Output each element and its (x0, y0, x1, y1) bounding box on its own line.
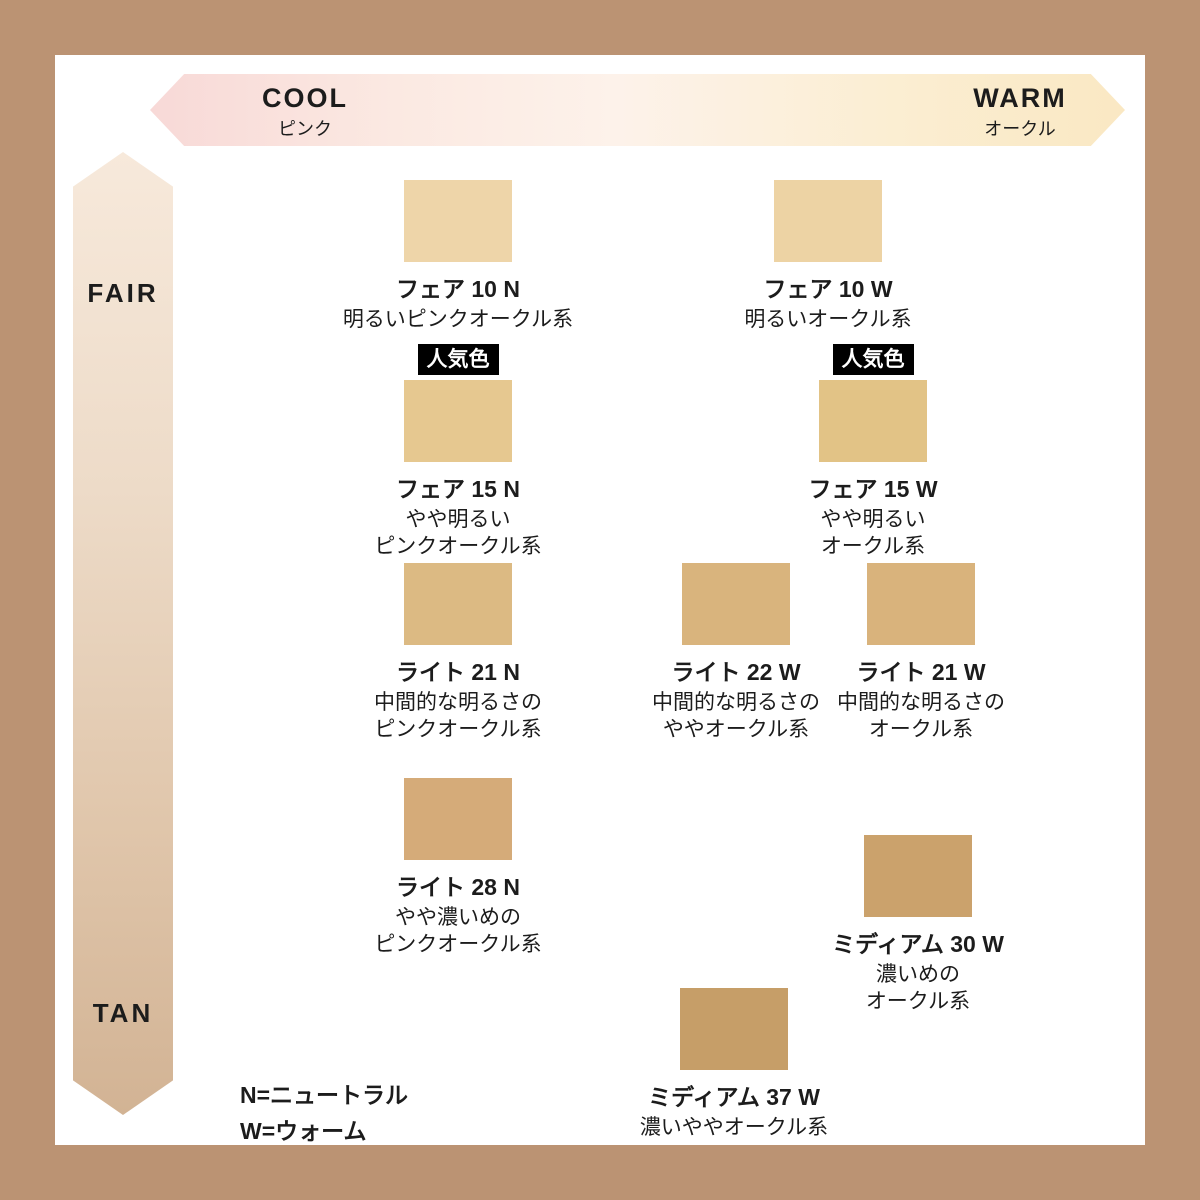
shade-light-21n: ライト 21 N 中間的な明るさの ピンクオークル系 (328, 563, 588, 743)
shade-swatch (404, 778, 512, 860)
legend: N=ニュートラル W=ウォーム (240, 1078, 408, 1149)
shade-name: ライト 22 W (671, 658, 800, 688)
shade-swatch (867, 563, 975, 645)
shade-name: フェア 15 N (396, 475, 520, 505)
shade-swatch (404, 380, 512, 462)
fair-label: FAIR (73, 278, 173, 309)
shade-light-21w: ライト 21 W 中間的な明るさの オークル系 (791, 563, 1051, 743)
shade-fair-10w: フェア 10 W 明るいオークル系 (698, 180, 958, 333)
cool-sublabel: ピンク (278, 115, 332, 141)
shade-desc: 明るいピンクオークル系 (343, 306, 573, 333)
tan-label: TAN (73, 998, 173, 1029)
shade-desc: 濃いややオークル系 (640, 1114, 828, 1141)
shade-desc: やや明るい ピンクオークル系 (374, 506, 541, 561)
shade-chart: COOL ピンク WARM オークル FAIR TAN フェア 10 N 明るい… (0, 0, 1200, 1200)
shade-swatch (680, 988, 788, 1070)
shade-desc: 中間的な明るさの オークル系 (837, 689, 1005, 744)
shade-desc: 明るいオークル系 (744, 306, 911, 333)
shade-desc: 濃いめの オークル系 (866, 961, 970, 1016)
shade-desc: 中間的な明るさの ピンクオークル系 (374, 689, 542, 744)
cool-axis-label: COOL ピンク (235, 84, 375, 141)
cool-label: COOL (262, 84, 348, 112)
shade-swatch (682, 563, 790, 645)
warm-axis-label: WARM オークル (950, 84, 1090, 141)
popular-badge: 人気色 (418, 344, 499, 375)
fair-tan-axis-arrow: FAIR TAN (73, 152, 173, 1115)
shade-swatch (404, 180, 512, 262)
shade-fair-15n: 人気色 フェア 15 N やや明るい ピンクオークル系 (328, 344, 588, 561)
warm-sublabel: オークル (984, 115, 1055, 141)
shade-name: ミディアム 30 W (832, 930, 1004, 960)
popular-badge: 人気色 (833, 344, 914, 375)
shade-medium-37w: ミディアム 37 W 濃いややオークル系 (604, 988, 864, 1141)
shade-name: フェア 10 N (396, 275, 520, 305)
legend-warm: W=ウォーム (240, 1114, 408, 1150)
shade-swatch (774, 180, 882, 262)
shade-swatch (404, 563, 512, 645)
warm-label: WARM (973, 84, 1066, 112)
shade-fair-15w: 人気色 フェア 15 W やや明るい オークル系 (743, 344, 1003, 561)
shade-desc: やや明るい オークル系 (821, 506, 926, 561)
shade-swatch (864, 835, 972, 917)
shade-fair-10n: フェア 10 N 明るいピンクオークル系 (328, 180, 588, 333)
shade-light-28n: ライト 28 N やや濃いめの ピンクオークル系 (328, 778, 588, 958)
shade-name: ライト 21 N (396, 658, 520, 688)
shade-name: ライト 21 W (856, 658, 985, 688)
shade-name: フェア 10 W (763, 275, 892, 305)
shade-desc: やや濃いめの ピンクオークル系 (374, 904, 541, 959)
shade-name: ライト 28 N (396, 873, 520, 903)
shade-swatch (819, 380, 927, 462)
legend-neutral: N=ニュートラル (240, 1078, 408, 1114)
shade-name: フェア 15 W (808, 475, 937, 505)
shade-name: ミディアム 37 W (648, 1083, 820, 1113)
